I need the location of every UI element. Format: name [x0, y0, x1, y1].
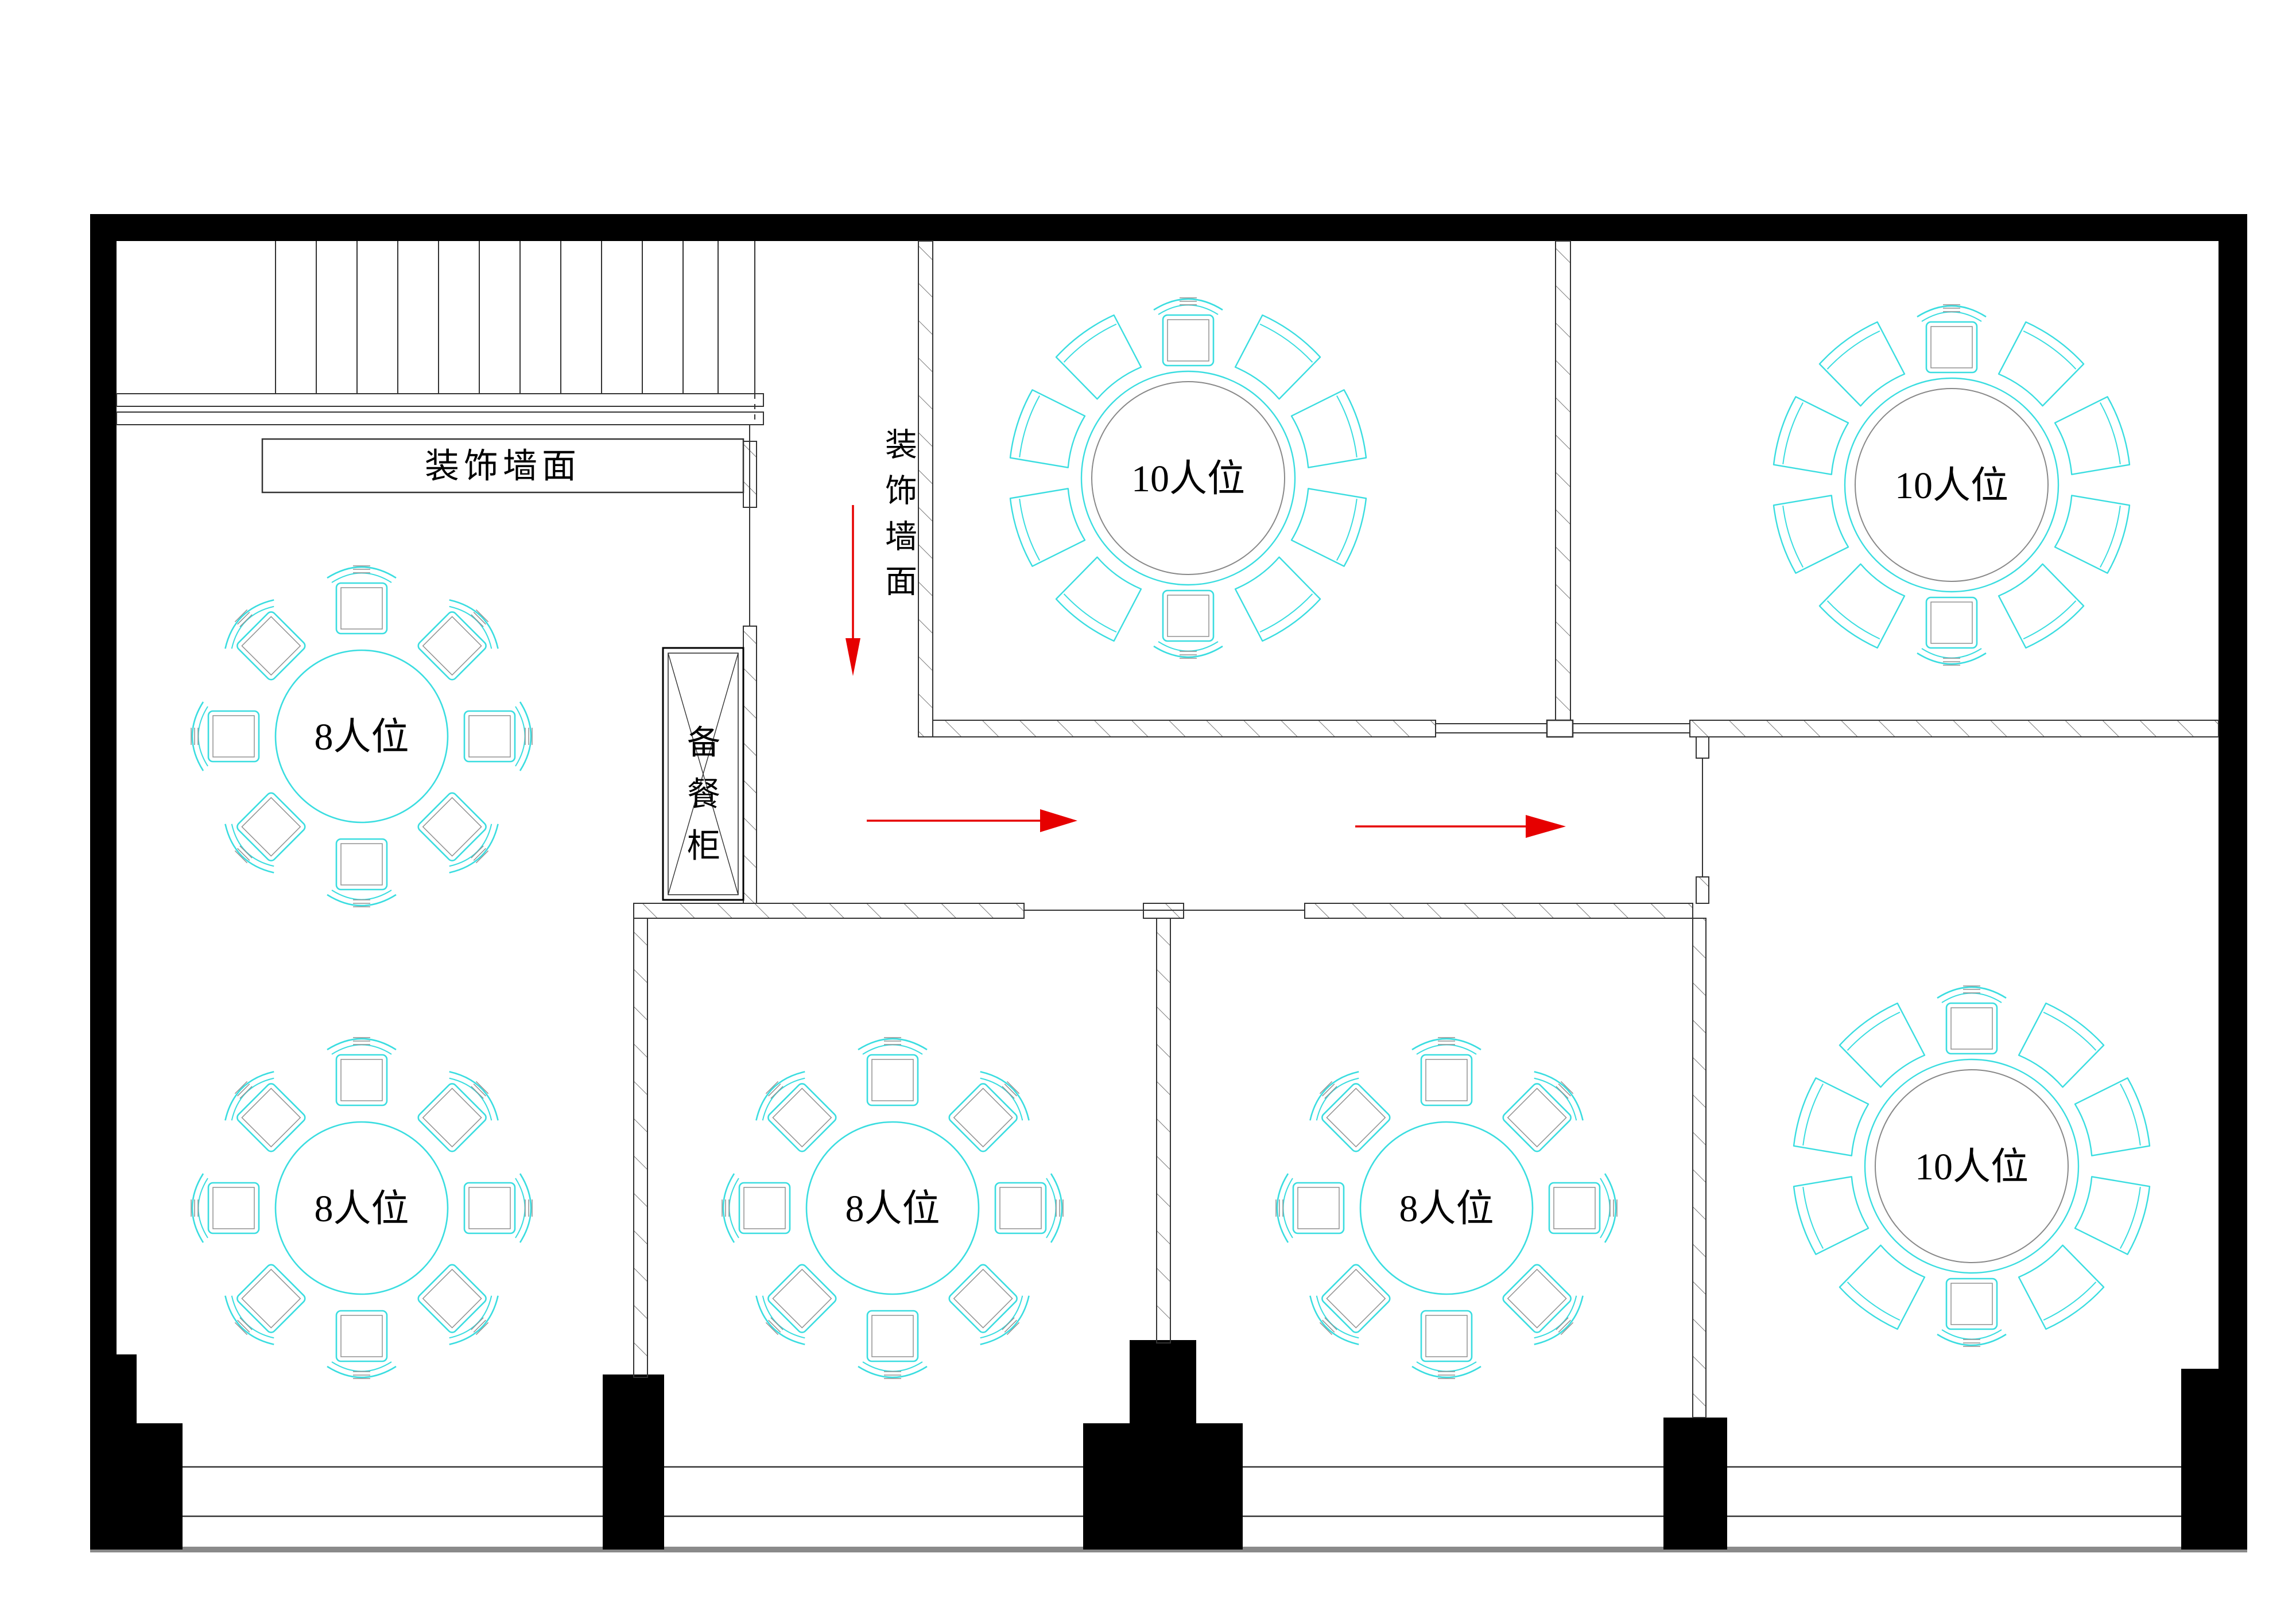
arrow-head	[1040, 809, 1077, 832]
chair	[464, 1174, 532, 1243]
chair	[191, 1174, 259, 1243]
chair-seat-inner	[1508, 1088, 1566, 1147]
chair-slot	[858, 1038, 927, 1105]
chair-seat-inner	[1168, 595, 1209, 636]
chair-seat-inner	[423, 1269, 482, 1328]
chair	[1837, 1000, 1932, 1092]
chair	[1302, 1256, 1398, 1353]
chair-backrest	[980, 1296, 1029, 1345]
chair-seat	[995, 1183, 1046, 1233]
chair-seat-inner	[423, 1088, 482, 1147]
chair-seat-inner	[1951, 1283, 1992, 1325]
table-capacity-label: 8人位	[315, 716, 409, 758]
chair-backrest	[1942, 993, 2002, 1003]
chair-slot	[1937, 986, 2006, 1054]
chair-slot	[1007, 480, 1088, 568]
chair-slot	[1790, 1077, 1871, 1164]
chair-backrest	[1158, 642, 1218, 651]
chair	[1917, 305, 1986, 372]
chair-backrest	[980, 1071, 1029, 1120]
structural-wall	[1130, 1340, 1196, 1423]
chair	[1412, 1311, 1481, 1379]
chair-slot	[1992, 559, 2086, 651]
chair	[1054, 552, 1148, 644]
structural-wall	[2219, 214, 2247, 1550]
chair-wedge-arc	[2100, 506, 2123, 568]
chair-backrest	[1922, 312, 1981, 322]
prep-cabinet-label-char: 餐	[687, 775, 720, 813]
chair	[2012, 1000, 2106, 1092]
vertical-labels-layer: 装饰墙面	[885, 428, 917, 600]
floor-plan-canvas: 装饰墙面 备餐柜 8人位8人位8人位8人位10人位10人位10人位 装饰墙面	[0, 0, 2296, 1623]
chair-seat	[1946, 1003, 1997, 1054]
wall-segment	[1696, 737, 1709, 758]
chair	[1992, 559, 2086, 651]
chair-wedge-arc	[1825, 328, 1880, 369]
chair	[722, 1174, 790, 1243]
chair-slot	[464, 702, 532, 771]
decorative-wall-label: 装饰墙面	[425, 448, 581, 486]
chair-slot	[191, 702, 259, 771]
chair-backrest	[1600, 1178, 1610, 1238]
chair-slot	[1154, 298, 1223, 366]
chair-slot	[217, 1063, 313, 1160]
chair-seat-inner	[242, 616, 300, 675]
dining-table-8p: 8人位	[191, 566, 532, 907]
chair-wedge-arc	[1337, 499, 1360, 561]
prep-cabinet: 备餐柜	[663, 648, 743, 900]
chair-slot	[1917, 597, 1986, 665]
chair-seat	[867, 1055, 918, 1105]
chair-slot	[2072, 1168, 2153, 1256]
chair	[1154, 298, 1223, 366]
chair	[327, 839, 396, 907]
chair-slot	[1154, 591, 1223, 658]
chair-wedge	[1007, 480, 1088, 568]
chair-seat	[1926, 322, 1977, 372]
chair-slot	[327, 1311, 396, 1379]
chair-seat-inner	[242, 1088, 300, 1147]
chair	[1917, 597, 1986, 665]
dining-table-8p: 8人位	[722, 1038, 1063, 1379]
staircase	[117, 241, 763, 425]
chair	[327, 566, 396, 634]
chair	[748, 1063, 844, 1160]
chair-backrest	[332, 1362, 391, 1372]
chair	[327, 1038, 396, 1105]
dining-table-8p: 8人位	[191, 1038, 532, 1379]
chair-slot	[217, 1256, 313, 1353]
chair	[858, 1311, 927, 1379]
chair-backrest	[1310, 1296, 1359, 1345]
chair	[1770, 487, 1851, 574]
chair	[2052, 395, 2133, 483]
chair-seat	[208, 1183, 259, 1233]
chair-slot	[1817, 319, 1911, 411]
chair-seat-inner	[341, 844, 382, 885]
chair-wedge	[2072, 1077, 2153, 1164]
chair-backrest	[332, 573, 391, 583]
chair-slot	[1549, 1174, 1617, 1243]
table-capacity-label: 8人位	[846, 1188, 940, 1230]
structural-wall	[90, 1354, 137, 1550]
arrow-head	[846, 638, 860, 676]
arrow-head	[1526, 815, 1566, 838]
chair	[1289, 480, 1370, 568]
chair-seat-inner	[1508, 1269, 1566, 1328]
chair-backrest	[332, 890, 391, 900]
decor-wall-vertical-char: 面	[885, 565, 917, 600]
chair-slot	[941, 1256, 1037, 1353]
wall-column	[1547, 720, 1573, 737]
chair	[2072, 1077, 2153, 1164]
chair-slot	[941, 1063, 1037, 1160]
chair	[858, 1038, 927, 1105]
chair-wedge-arc	[2043, 1282, 2098, 1323]
chair-seat-inner	[242, 1269, 300, 1328]
chair	[464, 702, 532, 771]
flow-arrow-right	[1355, 815, 1566, 838]
chair-seat	[336, 839, 387, 890]
wall-segment	[1696, 877, 1709, 903]
structural-wall	[1663, 1418, 1727, 1550]
chair-seat-inner	[1931, 327, 1972, 368]
chair-slot	[1412, 1038, 1481, 1105]
chair-seat-inner	[213, 716, 254, 757]
chair-seat-inner	[1327, 1269, 1385, 1328]
wall-segment	[918, 241, 933, 737]
chair-slot	[327, 566, 396, 634]
chair-seat	[1421, 1311, 1472, 1361]
chair-slot	[1790, 1168, 1871, 1256]
chair-wedge-arc	[1062, 321, 1116, 362]
flow-arrows-layer	[846, 505, 1566, 838]
chair-backrest	[1417, 1045, 1476, 1055]
chair-backrest	[225, 600, 274, 649]
chair-seat	[1549, 1183, 1600, 1233]
chair-slot	[995, 1174, 1063, 1243]
flow-arrow-right	[867, 809, 1077, 832]
chair-slot	[2012, 1240, 2106, 1332]
chair-seat	[464, 711, 515, 762]
chair-seat-inner	[213, 1187, 254, 1229]
dining-table-10p: 10人位	[1770, 305, 2133, 665]
chair-wedge	[1289, 480, 1370, 568]
chair	[1007, 480, 1088, 568]
chair	[191, 702, 259, 771]
chair-slot	[1770, 487, 1851, 574]
chair-backrest	[449, 824, 498, 873]
chair	[410, 1063, 506, 1160]
chair-seat-inner	[1298, 1187, 1339, 1229]
chair-seat	[1421, 1055, 1472, 1105]
chair-backrest	[449, 600, 498, 649]
chair-seat-inner	[1168, 320, 1209, 361]
stair-landing-band	[117, 394, 763, 406]
chair-wedge	[2052, 487, 2133, 574]
chair	[1228, 552, 1322, 644]
chair-slot	[1992, 319, 2086, 411]
chair-seat-inner	[773, 1269, 831, 1328]
chair-backrest	[199, 706, 208, 766]
chair-slot	[1054, 552, 1148, 644]
chair	[217, 592, 313, 688]
chair	[1495, 1063, 1591, 1160]
chair	[748, 1256, 844, 1353]
chair	[2052, 487, 2133, 574]
chair-slot	[1817, 559, 1911, 651]
chair-wedge-arc	[1825, 601, 1880, 642]
prep-cabinet-label-char: 备	[687, 724, 720, 761]
chair-slot	[748, 1256, 844, 1353]
chair-wedge-arc	[1260, 321, 1314, 362]
chair-seat-inner	[469, 716, 510, 757]
chair-slot	[410, 1256, 506, 1353]
decor-wall-vertical-char: 墙	[885, 520, 917, 556]
chair-wedge	[1770, 395, 1851, 483]
chair-seat-inner	[954, 1088, 1013, 1147]
structural-wall	[2181, 1369, 2247, 1550]
structural-wall	[90, 214, 2247, 241]
chair	[217, 1063, 313, 1160]
chair-slot	[1007, 389, 1088, 476]
chair-wedge-arc	[1260, 594, 1314, 635]
table-capacity-label: 10人位	[1131, 458, 1245, 500]
chair	[1837, 1240, 1932, 1332]
chair-slot	[191, 1174, 259, 1243]
chair-backrest	[1534, 1071, 1583, 1120]
chair-slot	[1289, 480, 1370, 568]
chair-wedge-arc	[1337, 395, 1360, 457]
chair-seat-inner	[1426, 1059, 1467, 1101]
chair	[410, 592, 506, 688]
chair-seat-inner	[872, 1059, 913, 1101]
table-capacity-label: 8人位	[315, 1188, 409, 1230]
chair-backrest	[1534, 1296, 1583, 1345]
chair-slot	[217, 592, 313, 688]
chair-backrest	[863, 1362, 922, 1372]
chair-seat-inner	[1951, 1008, 1992, 1049]
chair-seat-inner	[1000, 1187, 1041, 1229]
chair-seat-inner	[341, 1315, 382, 1357]
chair-wedge	[1289, 389, 1370, 476]
wall-segment	[634, 918, 647, 1377]
chair-backrest	[332, 1045, 391, 1055]
chair-slot	[1228, 312, 1322, 404]
chair	[1817, 319, 1911, 411]
floor-plan-page: 装饰墙面 备餐柜 8人位8人位8人位8人位10人位10人位10人位 装饰墙面	[0, 0, 2296, 1623]
dining-table-8p: 8人位	[1276, 1038, 1617, 1379]
chair-wedge-arc	[1780, 402, 1803, 464]
chair-seat-inner	[423, 616, 482, 675]
chair	[1412, 1038, 1481, 1105]
chair-slot	[2052, 395, 2133, 483]
chair-seat-inner	[341, 1059, 382, 1101]
chair	[1302, 1063, 1398, 1160]
chair-seat	[336, 583, 387, 634]
chair-backrest	[1310, 1071, 1359, 1120]
chair	[2072, 1168, 2153, 1256]
wall-segment	[1556, 241, 1570, 720]
chair-wedge-arc	[2023, 601, 2078, 642]
chair	[1992, 319, 2086, 411]
chair-backrest	[225, 1296, 274, 1345]
chair-seat-inner	[242, 798, 300, 856]
stair-landing-band	[117, 412, 763, 425]
chair-backrest	[449, 1296, 498, 1345]
chair-seat	[336, 1055, 387, 1105]
chair-backrest	[756, 1296, 805, 1345]
chair-seat-inner	[341, 588, 382, 629]
wall-segment	[1305, 903, 1693, 918]
chair-seat-inner	[1426, 1315, 1467, 1357]
chair	[410, 785, 506, 881]
structural-wall	[90, 214, 117, 1550]
chair-wedge-arc	[1845, 1009, 1900, 1050]
chair	[1289, 389, 1370, 476]
chair-slot	[1289, 389, 1370, 476]
chair-seat	[208, 711, 259, 762]
chair	[1937, 986, 2006, 1054]
chair-seat	[867, 1311, 918, 1361]
chair-slot	[410, 785, 506, 881]
chair-seat-inner	[1554, 1187, 1595, 1229]
chair	[1549, 1174, 1617, 1243]
wall-segment	[634, 903, 1024, 918]
dining-table-10p: 10人位	[1790, 986, 2153, 1346]
chair-wedge-arc	[2043, 1009, 2098, 1050]
table-capacity-label: 10人位	[1915, 1146, 2029, 1188]
chair-slot	[1837, 1000, 1932, 1092]
structural-wall	[603, 1374, 664, 1550]
chair-wedge-arc	[2023, 328, 2078, 369]
chair-backrest	[1158, 305, 1218, 315]
chair-wedge	[1790, 1077, 1871, 1164]
chair-detail	[1004, 1084, 1017, 1096]
decor-wall-vertical-char: 饰	[885, 474, 917, 510]
chair	[1007, 389, 1088, 476]
chair-seat-inner	[469, 1187, 510, 1229]
chair-wedge	[1007, 389, 1088, 476]
chair-backrest	[225, 824, 274, 873]
chair-slot	[2072, 1077, 2153, 1164]
chair-seat-inner	[954, 1269, 1013, 1328]
chair-wedge-arc	[1062, 594, 1116, 635]
chair-slot	[1917, 305, 1986, 372]
chair-seat	[1163, 315, 1213, 366]
chair-slot	[1054, 312, 1148, 404]
chair-slot	[722, 1174, 790, 1243]
chair-wedge	[1770, 487, 1851, 574]
chair-backrest	[863, 1045, 922, 1055]
chair-wedge-arc	[2120, 1083, 2143, 1146]
chair-backrest	[1922, 649, 1981, 658]
chair-backrest	[515, 706, 525, 766]
chair-backrest	[199, 1178, 208, 1238]
chair-slot	[2052, 487, 2133, 574]
chair-slot	[1302, 1256, 1398, 1353]
structural-wall	[1083, 1423, 1243, 1550]
chair	[1937, 1279, 2006, 1346]
chair-slot	[1228, 552, 1322, 644]
chair-slot	[217, 785, 313, 881]
decorative-wall-label-box: 装饰墙面	[262, 439, 743, 492]
chair-seat	[336, 1311, 387, 1361]
prep-cabinet-label-char: 柜	[687, 827, 720, 864]
chair-wedge	[2052, 395, 2133, 483]
chair-backrest	[515, 1178, 525, 1238]
dining-table-10p: 10人位	[1007, 298, 1370, 658]
chair-wedge-arc	[1800, 1083, 1823, 1146]
wall-segment	[743, 626, 757, 903]
chair-seat-inner	[1327, 1088, 1385, 1147]
chair-slot	[1937, 1279, 2006, 1346]
chair-slot	[327, 1038, 396, 1105]
wall-segment	[1690, 720, 2219, 737]
wall-segment	[933, 720, 1436, 737]
chair-seat-inner	[423, 798, 482, 856]
chair-slot	[1276, 1174, 1344, 1243]
table-capacity-label: 8人位	[1399, 1188, 1494, 1230]
chair-seat	[464, 1183, 515, 1233]
chair-slot	[1495, 1256, 1591, 1353]
chair	[941, 1256, 1037, 1353]
chair	[1154, 591, 1223, 658]
table-capacity-label: 10人位	[1895, 465, 2008, 507]
chair-wedge-arc	[1017, 499, 1040, 561]
chair-seat-inner	[1931, 602, 1972, 643]
chair	[410, 1256, 506, 1353]
chair-backrest	[730, 1178, 739, 1238]
chair	[941, 1063, 1037, 1160]
wall-segment	[1157, 918, 1170, 1343]
chair-wedge-arc	[1800, 1187, 1823, 1249]
chair-seat	[739, 1183, 790, 1233]
chair-wedge	[1790, 1168, 1871, 1256]
chair-detail	[769, 1084, 781, 1096]
chair	[1790, 1168, 1871, 1256]
chair	[1276, 1174, 1344, 1243]
chair-slot	[1412, 1311, 1481, 1379]
chair	[217, 785, 313, 881]
chair-slot	[748, 1063, 844, 1160]
chair-seat	[1163, 591, 1213, 641]
partition-walls	[634, 241, 2219, 1418]
chair-wedge-arc	[1780, 506, 1803, 568]
chair-wedge-arc	[2100, 402, 2123, 464]
chair-seat-inner	[744, 1187, 785, 1229]
chair	[1228, 312, 1322, 404]
chair-seat	[1946, 1279, 1997, 1329]
chair-slot	[1495, 1063, 1591, 1160]
chair	[1817, 559, 1911, 651]
chair	[995, 1174, 1063, 1243]
chair	[1054, 312, 1148, 404]
chair-slot	[410, 1063, 506, 1160]
chair	[217, 1256, 313, 1353]
chair-wedge-arc	[1845, 1282, 1900, 1323]
chair	[2012, 1240, 2106, 1332]
chair-backrest	[225, 1071, 274, 1120]
chair	[1790, 1077, 1871, 1164]
chair-seat	[1926, 597, 1977, 648]
outer-structural-walls	[90, 214, 2247, 1550]
chair	[1495, 1256, 1591, 1353]
chair-wedge	[2072, 1168, 2153, 1256]
chair-wedge-arc	[2120, 1187, 2143, 1249]
chair-backrest	[1942, 1330, 2002, 1339]
chair	[1770, 395, 1851, 483]
